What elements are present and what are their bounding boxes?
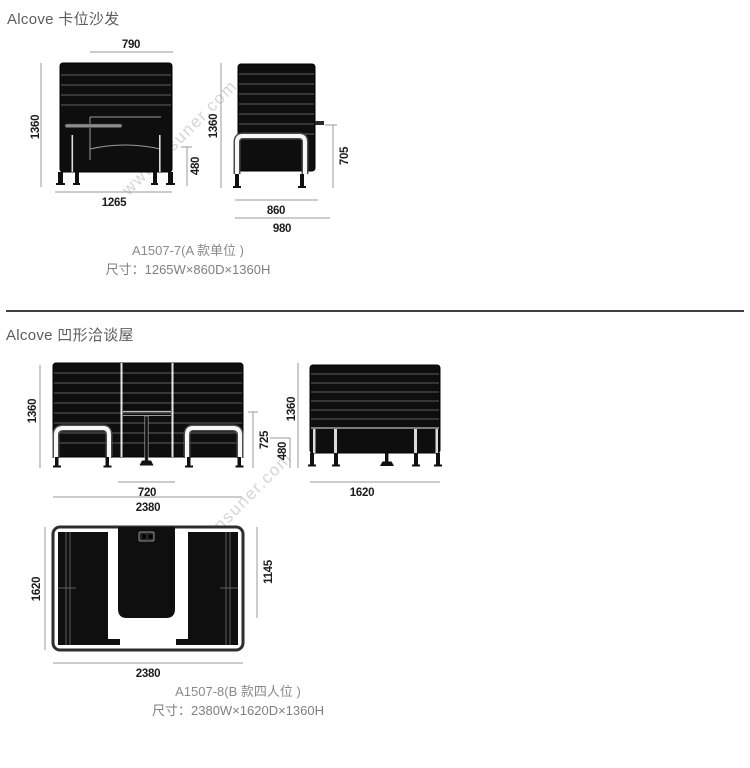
sofa-side-legs (233, 174, 306, 188)
section1-caption: A1507-7(A 款单位 ) 尺寸：1265W×860D×1360H (78, 241, 298, 279)
section2-title: Alcove 凹形洽谈屋 (6, 324, 134, 345)
section2-caption: A1507-8(B 款四人位 ) 尺寸：2380W×1620D×1360H (128, 682, 348, 720)
dim-front-height: 1360 (27, 399, 39, 423)
dim-side-height: 1360 (208, 114, 220, 138)
sofa-side-view-drawing: 1360 705 860 980 (204, 36, 354, 236)
armrest-table (65, 124, 122, 128)
booth-side-body (310, 365, 440, 453)
dim-side-depth: 1620 (350, 487, 374, 499)
sofa-side-body (238, 64, 324, 171)
dim-side-depth-outer: 980 (273, 223, 291, 235)
section-divider (6, 310, 744, 312)
section1-title: Alcove 卡位沙发 (7, 8, 120, 29)
dim-front-top-width: 790 (122, 39, 140, 51)
table-pedestal (145, 416, 148, 462)
booth-front-view-drawing: 1360 (20, 355, 305, 515)
dim-top-width: 2380 (136, 668, 160, 680)
sofa-front-view-drawing: 790 1360 480 (28, 36, 208, 214)
bench-foot (176, 639, 188, 645)
dim-front-seat-height: 480 (190, 157, 202, 175)
table-stub (315, 121, 324, 125)
spec-sheet-page: www.insuner.com www.insuner.com Alcove 卡… (0, 0, 750, 768)
pedestal-foot (380, 462, 394, 467)
section2-size: 尺寸：2380W×1620D×1360H (128, 701, 348, 720)
booth-side-legs (308, 453, 442, 467)
dim-front-bottom-width: 1265 (102, 197, 127, 209)
booth-top-view-drawing: 1620 1145 2380 (20, 515, 290, 685)
dim-front-back-inner-height: 725 (259, 430, 271, 449)
dim-front-total-width: 2380 (136, 502, 160, 514)
section2-model: A1507-8(B 款四人位 ) (128, 682, 348, 701)
dim-front-height: 1360 (30, 115, 42, 139)
booth-side-view-drawing: 1360 1620 (285, 355, 450, 505)
dim-top-depth: 1620 (31, 577, 43, 601)
sofa-front-legs (56, 172, 175, 185)
bench-foot (108, 639, 120, 645)
dim-side-armrest-height: 705 (339, 146, 351, 165)
center-table (118, 527, 175, 618)
dim-top-inner-depth: 1145 (263, 559, 275, 584)
pedestal-foot (140, 461, 154, 466)
section1-model: A1507-7(A 款单位 ) (78, 241, 298, 260)
dim-side-height: 1360 (286, 397, 298, 421)
dim-side-depth-inner: 860 (267, 205, 285, 217)
section1-size: 尺寸：1265W×860D×1360H (78, 260, 298, 279)
booth-front-body (53, 363, 243, 462)
sofa-front-body (60, 63, 172, 172)
